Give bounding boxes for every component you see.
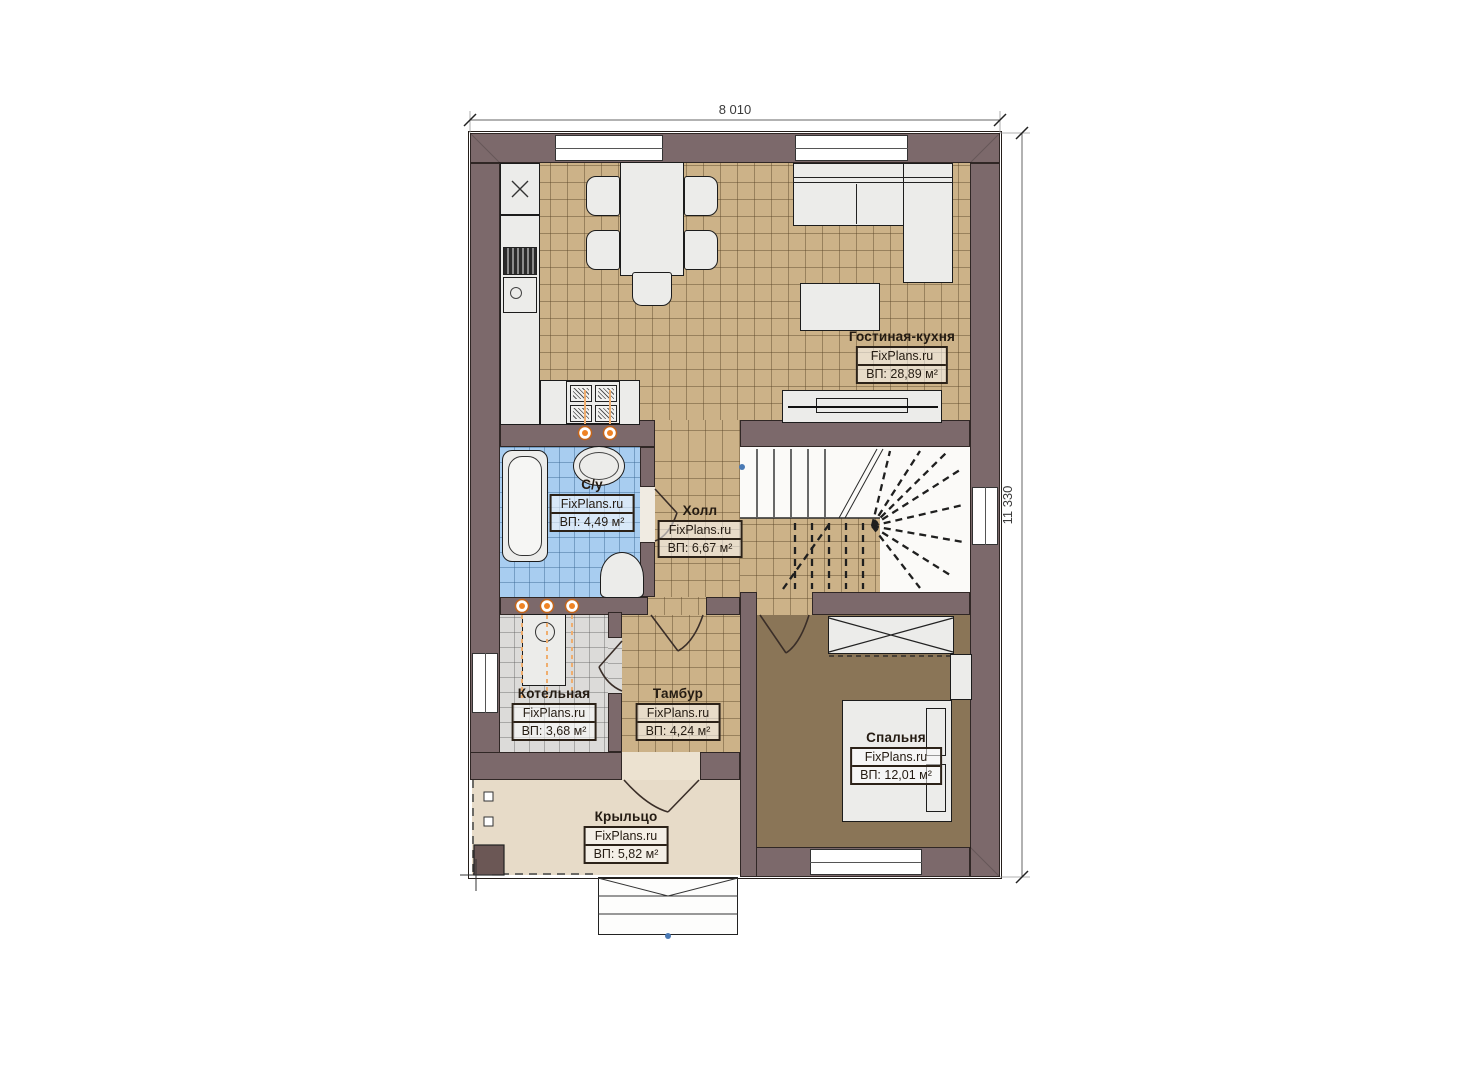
wall-stairs-bedroom bbox=[812, 592, 970, 615]
dimension-width-label: 8 010 bbox=[719, 102, 752, 117]
room-area: ВП: 6,67 м² bbox=[660, 540, 741, 556]
kitchen-appliance bbox=[500, 163, 540, 215]
room-area: ВП: 28,89 м² bbox=[858, 366, 946, 382]
stove-burner bbox=[570, 405, 592, 422]
room-name: Крыльцо bbox=[584, 809, 669, 824]
stove-burner bbox=[570, 385, 592, 402]
wardrobe bbox=[828, 616, 954, 654]
bathtub bbox=[502, 450, 548, 562]
room-label-porch: Крыльцо FixPlans.ru ВП: 5,82 м² bbox=[584, 809, 669, 864]
floor-hall-passage bbox=[655, 420, 740, 447]
dining-chair bbox=[684, 176, 718, 216]
wall-bathroom-right-upper bbox=[640, 447, 655, 487]
room-area: ВП: 3,68 м² bbox=[514, 723, 595, 739]
window-stairs bbox=[972, 487, 998, 545]
room-brand: FixPlans.ru bbox=[858, 348, 946, 366]
room-name: Котельная bbox=[512, 686, 597, 701]
room-name: Тамбур bbox=[636, 686, 721, 701]
coffee-table bbox=[800, 283, 880, 331]
wall-living-stairs bbox=[740, 420, 970, 447]
room-label-bathroom: С/у FixPlans.ru ВП: 4,49 м² bbox=[550, 477, 635, 532]
sofa-back-line bbox=[793, 177, 953, 178]
entry-steps bbox=[598, 877, 738, 935]
room-brand: FixPlans.ru bbox=[552, 496, 633, 514]
boiler-unit bbox=[522, 614, 566, 686]
room-info-box: FixPlans.ru ВП: 6,67 м² bbox=[658, 520, 743, 558]
kitchen-sink-drainer bbox=[503, 247, 537, 275]
kitchen-sink-basin bbox=[503, 277, 537, 313]
opening-vestibule-door bbox=[648, 597, 706, 615]
room-label-bedroom: Спальня FixPlans.ru ВП: 12,01 м² bbox=[850, 730, 942, 785]
sofa-seat-divider bbox=[856, 184, 857, 224]
wall-mid-left bbox=[500, 597, 648, 615]
opening-boiler-door bbox=[608, 638, 622, 693]
dining-chair bbox=[586, 230, 620, 270]
dimension-right: 11 330 bbox=[1000, 127, 1030, 883]
room-brand: FixPlans.ru bbox=[660, 522, 741, 540]
wall-bedroom-left bbox=[740, 592, 757, 877]
room-area: ВП: 5,82 м² bbox=[586, 846, 667, 862]
room-info-box: FixPlans.ru ВП: 4,49 м² bbox=[550, 494, 635, 532]
room-label-living-kitchen: Гостиная-кухня FixPlans.ru ВП: 28,89 м² bbox=[849, 329, 955, 384]
room-brand: FixPlans.ru bbox=[514, 705, 595, 723]
stove-burner bbox=[595, 405, 617, 422]
wall-front-left bbox=[470, 752, 622, 780]
window-living bbox=[795, 135, 908, 161]
dimension-top: 8 010 bbox=[464, 102, 1006, 133]
room-label-hall: Холл FixPlans.ru ВП: 6,67 м² bbox=[658, 503, 743, 558]
room-name: Холл bbox=[658, 503, 743, 518]
floor-plan-canvas: 8 010 11 330 bbox=[0, 0, 1473, 1080]
dining-chair bbox=[586, 176, 620, 216]
wall-front-right bbox=[700, 752, 740, 780]
dining-chair bbox=[684, 230, 718, 270]
room-info-box: FixPlans.ru ВП: 5,82 м² bbox=[584, 826, 669, 864]
dresser bbox=[950, 654, 972, 700]
room-brand: FixPlans.ru bbox=[852, 749, 940, 767]
window-bedroom bbox=[810, 849, 922, 875]
room-name: Гостиная-кухня bbox=[849, 329, 955, 344]
room-name: С/у bbox=[550, 477, 635, 492]
wall-exterior-top bbox=[470, 133, 1000, 163]
sofa-back-line bbox=[793, 182, 953, 183]
room-brand: FixPlans.ru bbox=[638, 705, 719, 723]
room-info-box: FixPlans.ru ВП: 4,24 м² bbox=[636, 703, 721, 741]
window-boiler bbox=[472, 653, 498, 713]
opening-bedroom-door bbox=[757, 592, 812, 615]
room-area: ВП: 4,24 м² bbox=[638, 723, 719, 739]
room-name: Спальня bbox=[850, 730, 942, 745]
opening-bathroom-door bbox=[640, 487, 655, 542]
room-area: ВП: 12,01 м² bbox=[852, 767, 940, 783]
wall-mid-right bbox=[706, 597, 740, 615]
wall-boiler-vestibule-lower bbox=[608, 693, 622, 752]
room-info-box: FixPlans.ru ВП: 28,89 м² bbox=[856, 346, 948, 384]
room-brand: FixPlans.ru bbox=[586, 828, 667, 846]
dining-chair bbox=[632, 272, 672, 306]
room-area: ВП: 4,49 м² bbox=[552, 514, 633, 530]
dining-table bbox=[620, 162, 684, 276]
room-info-box: FixPlans.ru ВП: 12,01 м² bbox=[850, 747, 942, 785]
floor-under-stairs bbox=[740, 518, 880, 592]
opening-entrance-door bbox=[622, 752, 700, 780]
wall-boiler-vestibule-upper bbox=[608, 612, 622, 638]
room-label-boiler-room: Котельная FixPlans.ru ВП: 3,68 м² bbox=[512, 686, 597, 741]
stove-burner bbox=[595, 385, 617, 402]
room-info-box: FixPlans.ru ВП: 3,68 м² bbox=[512, 703, 597, 741]
toilet bbox=[600, 552, 644, 598]
tv bbox=[816, 398, 908, 413]
sofa-chaise bbox=[903, 163, 953, 283]
dimension-height-label: 11 330 bbox=[1000, 486, 1015, 525]
window-kitchen bbox=[555, 135, 663, 161]
room-label-vestibule: Тамбур FixPlans.ru ВП: 4,24 м² bbox=[636, 686, 721, 741]
